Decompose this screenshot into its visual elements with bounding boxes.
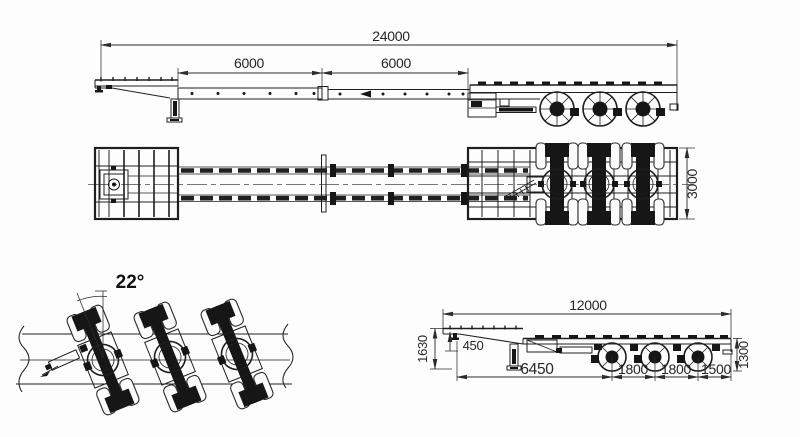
retracted-length-label: 12000 [569, 297, 607, 313]
extended-side-view: 24000 6000 6000 [95, 28, 678, 126]
dimension-retracted-length: 12000 [443, 297, 731, 338]
steering-angle-label: 22° [116, 272, 145, 293]
front-platform-frame [95, 148, 178, 219]
landing-gear [507, 344, 521, 370]
rear-extension-label: 6000 [381, 55, 411, 71]
deck-pockets [535, 335, 728, 338]
dimension-deck-width: 3000 [679, 148, 700, 219]
axle-spacing-1-label: 1800 [618, 361, 648, 377]
telescopic-rails-plan [178, 155, 530, 212]
steered-axle-unit [132, 300, 209, 413]
landing-gear [167, 99, 182, 122]
wheel [540, 92, 579, 126]
rear-section-label: 1500 [701, 361, 731, 377]
gooseneck-height-label: 1630 [415, 335, 430, 363]
kingpin-to-axle-label: 6450 [520, 361, 554, 378]
axle-assembly-plan [578, 143, 620, 225]
kingpin [95, 86, 103, 93]
axle-assembly-plan [622, 143, 664, 225]
dimension-gooseneck-height: 1630 [415, 329, 452, 370]
telescopic-beam-2 [328, 90, 470, 100]
front-extension-label: 6000 [234, 55, 264, 71]
slider-plate [322, 155, 327, 212]
overall-length-label: 24000 [372, 28, 410, 44]
gooseneck-drop-label: 450 [463, 338, 484, 353]
axle-assembly-plan [536, 143, 578, 225]
dimension-extensions: 6000 6000 [178, 55, 468, 98]
steering-angle-detail: 22° [16, 272, 293, 417]
break-line [19, 326, 29, 392]
wheel [583, 92, 622, 126]
dimension-deck-height: 1300 [733, 339, 751, 372]
retracted-side-view: 12000 [415, 297, 751, 381]
plan-view: 3000 [88, 143, 700, 225]
suspension-box [468, 93, 536, 117]
trailer-drawing-canvas: 24000 6000 6000 [0, 0, 800, 437]
underdeck-equipment [527, 340, 720, 353]
gooseneck-side [95, 77, 182, 122]
wheel [626, 92, 665, 126]
telescopic-beam-1 [178, 88, 322, 99]
deck-width-label: 3000 [684, 169, 700, 199]
steered-axle-unit [199, 297, 276, 410]
deck-height-label: 1300 [736, 341, 751, 369]
trailer-drawing: 24000 6000 6000 [0, 0, 800, 437]
axle-spacing-2-label: 1800 [661, 361, 691, 377]
beam-joint [318, 87, 328, 101]
